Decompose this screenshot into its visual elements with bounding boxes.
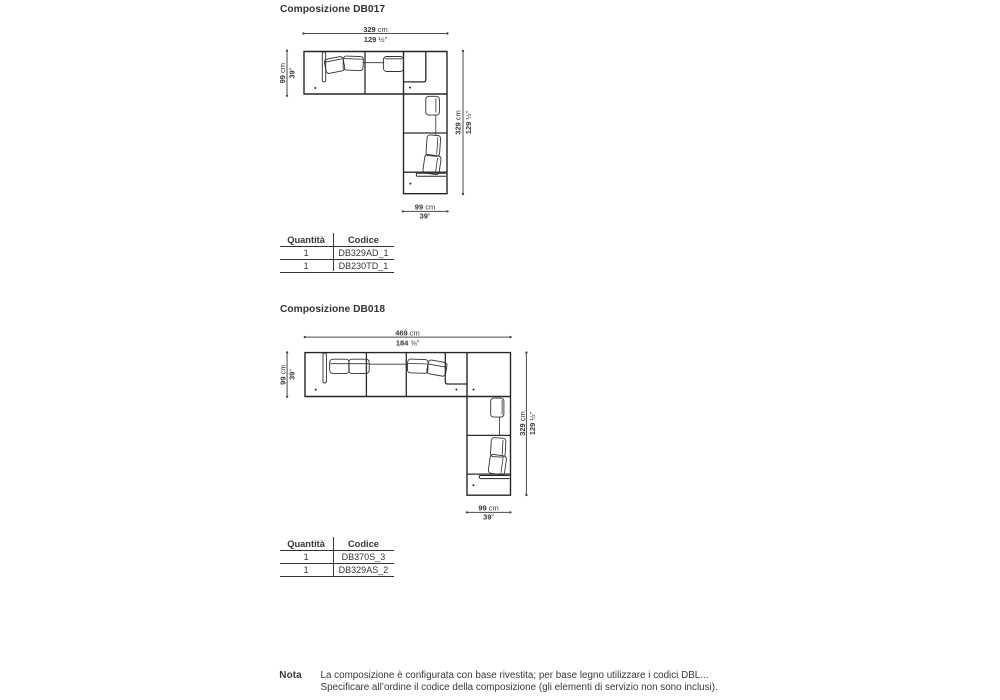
svg-text:39”: 39” (287, 67, 296, 78)
svg-text:129 ½”: 129 ½” (528, 411, 537, 435)
svg-text:39”: 39” (420, 212, 431, 221)
svg-text:129 ½”: 129 ½” (464, 110, 473, 134)
svg-text:329 cm: 329 cm (454, 110, 463, 135)
svg-text:99 cm: 99 cm (278, 63, 287, 83)
svg-text:99 cm: 99 cm (415, 203, 435, 212)
svg-text:99 cm: 99 cm (278, 364, 287, 384)
svg-text:39”: 39” (483, 513, 494, 522)
svg-text:329 cm: 329 cm (363, 25, 388, 34)
svg-text:184 ⅝”: 184 ⅝” (396, 338, 420, 347)
svg-text:469 cm: 469 cm (395, 329, 420, 338)
svg-text:129 ½”: 129 ½” (364, 35, 388, 44)
svg-text:99 cm: 99 cm (478, 504, 498, 513)
svg-text:329 cm: 329 cm (518, 411, 527, 436)
svg-text:39”: 39” (288, 369, 297, 380)
